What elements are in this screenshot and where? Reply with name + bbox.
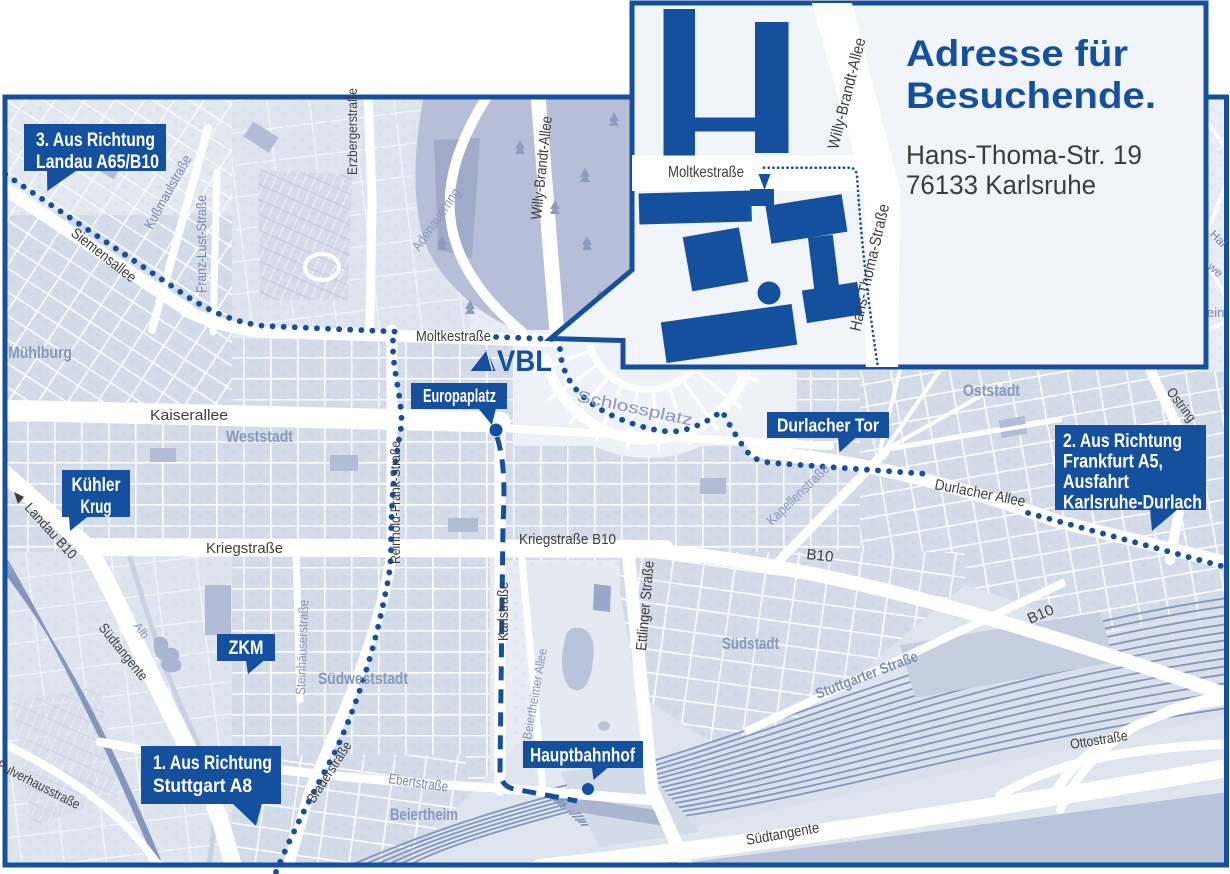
svg-text:3. Aus Richtung: 3. Aus Richtung [36,129,155,151]
svg-text:76133 Karlsruhe: 76133 Karlsruhe [906,170,1096,200]
svg-text:ZKM: ZKM [229,637,264,659]
svg-text:Südweststadt: Südweststadt [318,669,408,688]
svg-text:Kaiserallee: Kaiserallee [150,407,228,424]
svg-text:Südstadt: Südstadt [722,634,779,653]
svg-text:Weststadt: Weststadt [226,427,293,446]
svg-text:Karlsruhe-Durlach: Karlsruhe-Durlach [1063,493,1202,514]
svg-text:Erzbergerstraße: Erzbergerstraße [344,88,360,175]
svg-text:B10: B10 [806,546,835,566]
svg-text:Adresse für: Adresse für [906,33,1128,74]
svg-text:Frankfurt A5,: Frankfurt A5, [1063,452,1163,473]
svg-text:Karlstraße: Karlstraße [495,582,512,641]
svg-text:Durlacher Tor: Durlacher Tor [777,415,879,436]
svg-text:Besuchende.: Besuchende. [906,75,1156,116]
svg-text:Kriegstraße B10: Kriegstraße B10 [519,531,616,548]
svg-text:Beiertheim: Beiertheim [390,805,458,824]
svg-text:VBL: VBL [497,345,552,378]
svg-text:Ausfahrt: Ausfahrt [1063,472,1130,493]
svg-text:Franz-Lust-Straße: Franz-Lust-Straße [193,195,209,293]
svg-text:Hauptbahnhof: Hauptbahnhof [530,745,635,767]
svg-text:Kriegstraße: Kriegstraße [206,540,283,557]
svg-text:2. Aus Richtung: 2. Aus Richtung [1063,431,1182,452]
svg-text:Reinhold-Frank-Straße: Reinhold-Frank-Straße [387,441,403,564]
svg-text:Moltkestraße: Moltkestraße [416,328,491,345]
svg-text:1. Aus Richtung: 1. Aus Richtung [153,752,272,774]
svg-text:Kühler: Kühler [72,474,121,496]
svg-text:Oststadt: Oststadt [963,381,1020,400]
svg-text:Stuttgart A8: Stuttgart A8 [153,775,252,797]
svg-text:Mühlburg: Mühlburg [8,343,72,362]
svg-text:ein: ein [1207,305,1224,320]
svg-text:Europaplatz: Europaplatz [423,385,496,406]
svg-text:Hans-Thoma-Str. 19: Hans-Thoma-Str. 19 [906,140,1142,170]
svg-text:Landau A65/B10: Landau A65/B10 [36,151,159,173]
svg-text:Krug: Krug [81,496,112,518]
svg-text:Moltkestraße: Moltkestraße [668,164,744,181]
